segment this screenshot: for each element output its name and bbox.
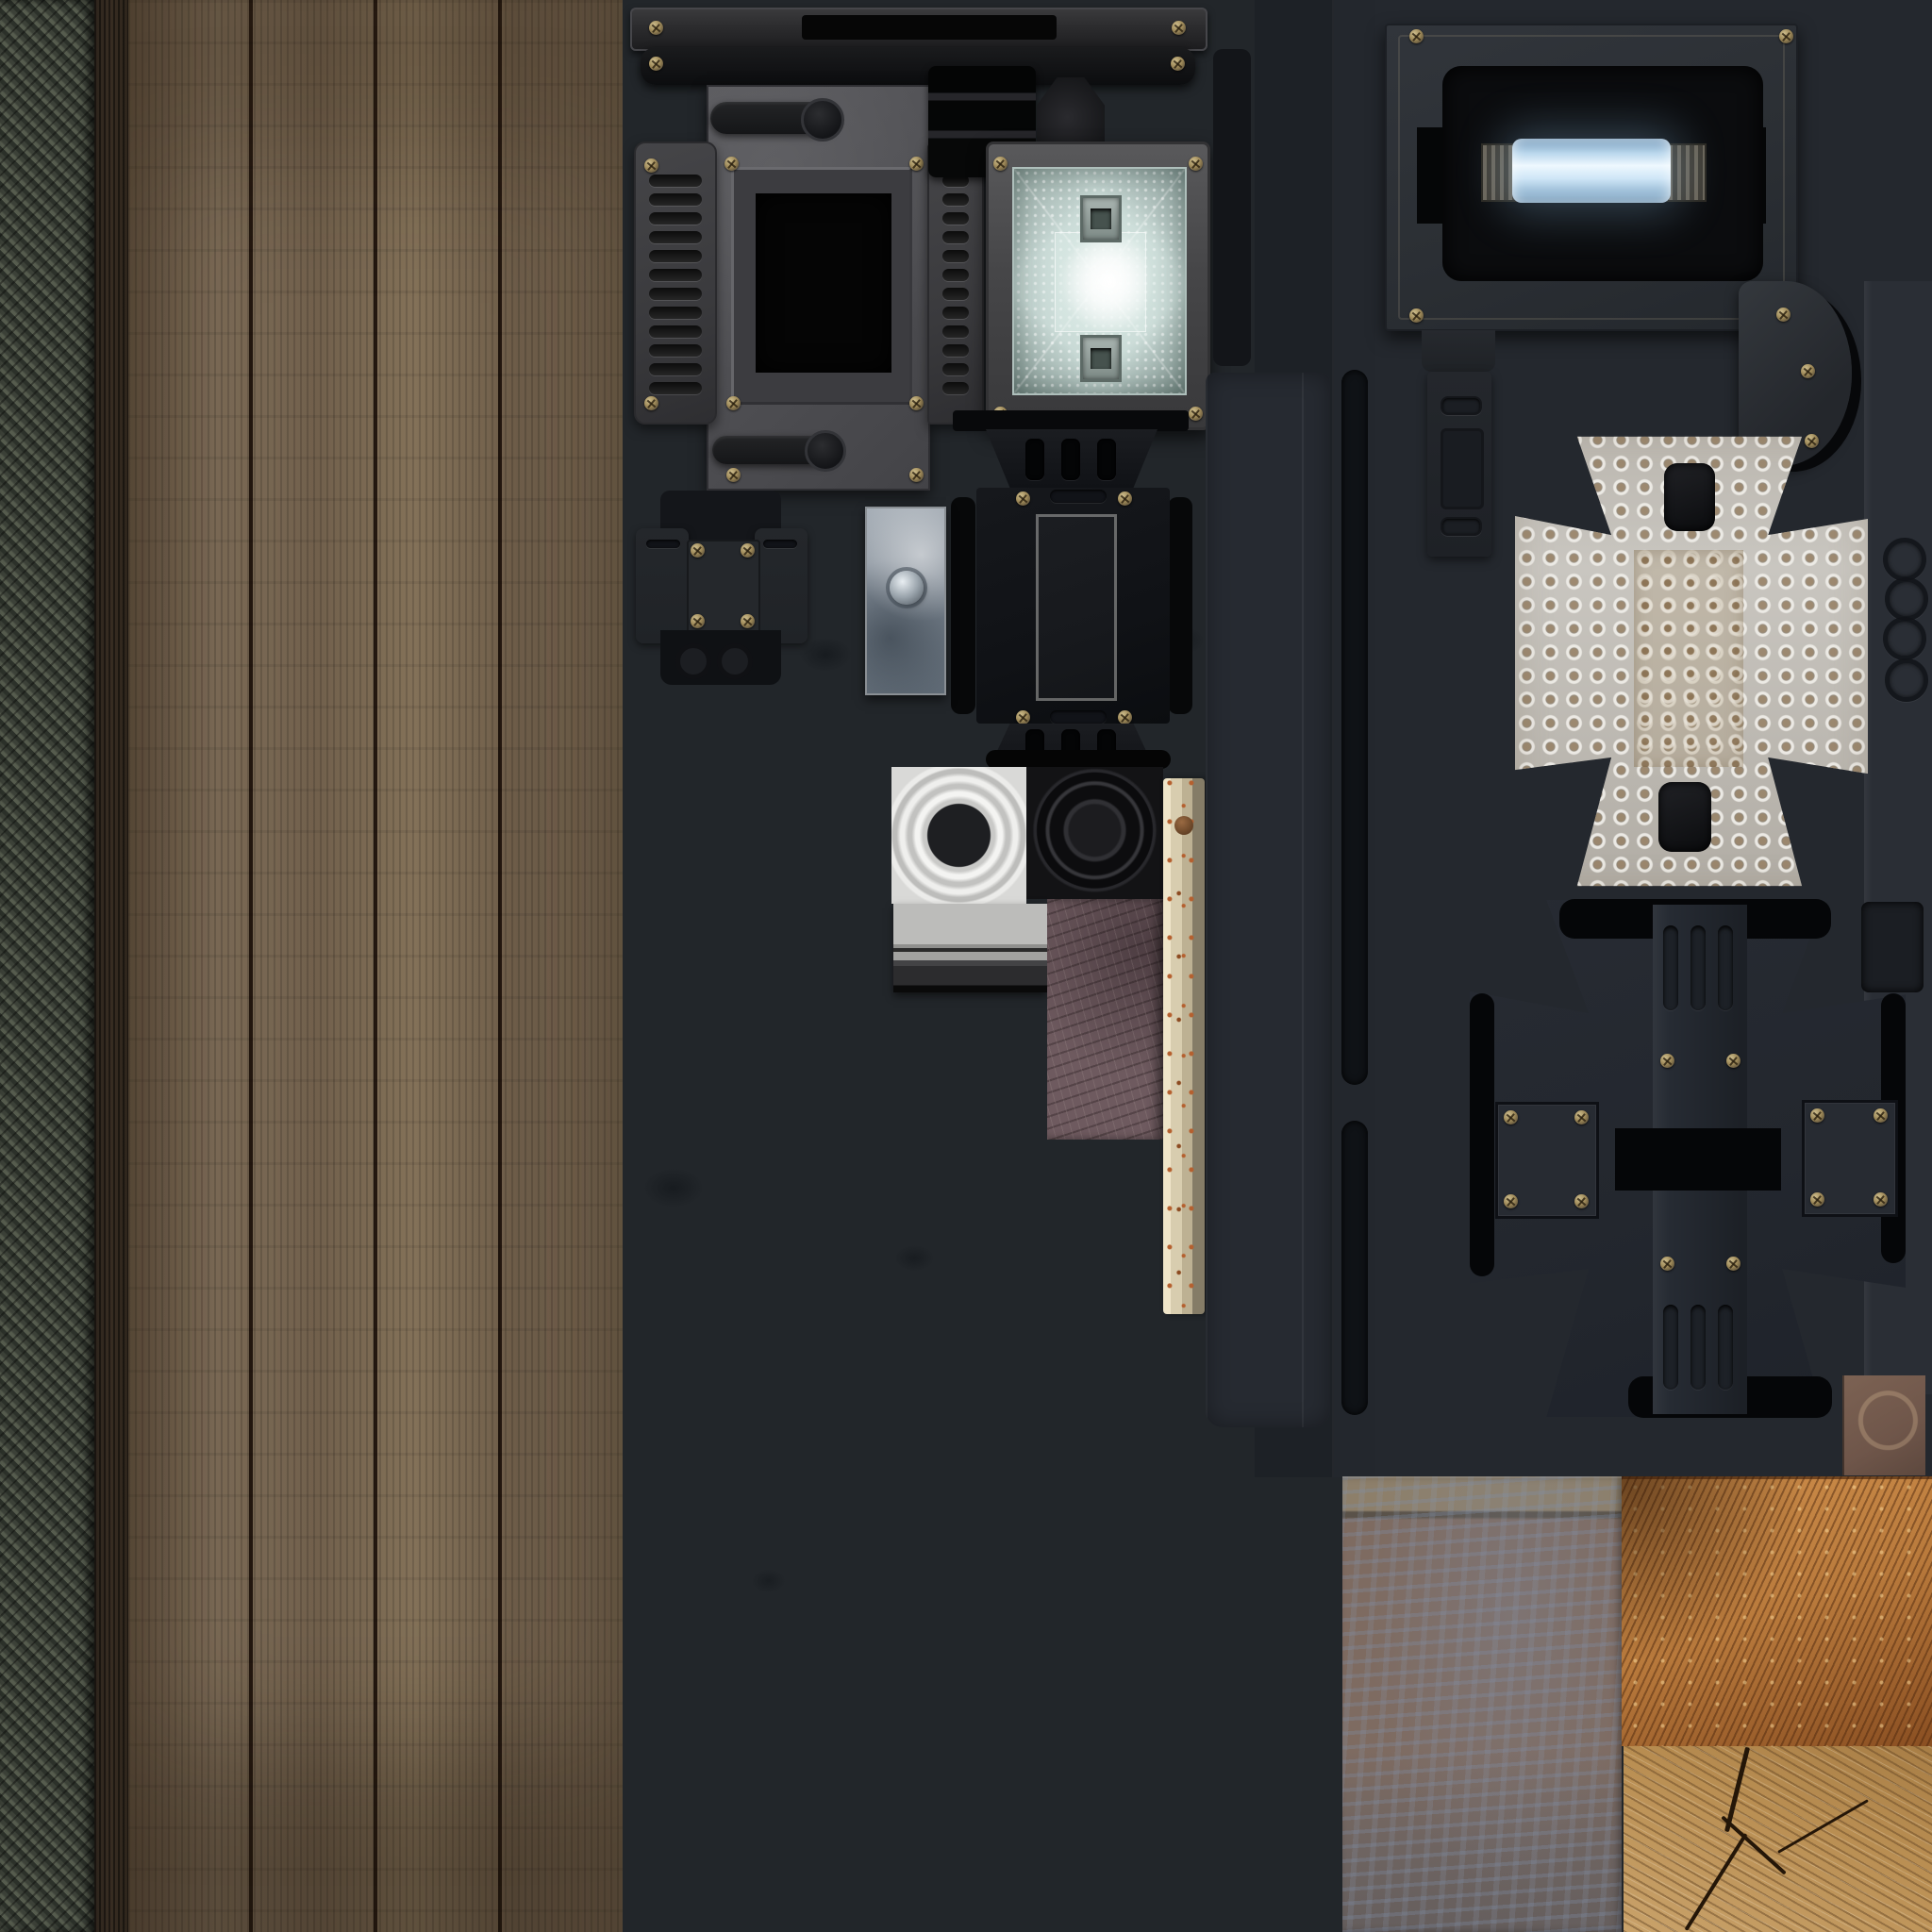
louver-slot bbox=[649, 288, 702, 300]
bracket-slot bbox=[763, 540, 797, 548]
bracket-slot bbox=[646, 540, 680, 548]
screw-icon bbox=[1660, 1257, 1674, 1271]
louver-slot bbox=[649, 382, 702, 394]
nut-ring-icon bbox=[1883, 538, 1926, 581]
screw-icon bbox=[741, 614, 755, 628]
white-speaker-tile bbox=[891, 767, 1026, 904]
louver-slot bbox=[942, 269, 969, 281]
louver-slot bbox=[649, 269, 702, 281]
box-pill-slot bbox=[1050, 490, 1107, 503]
box-pill-slot bbox=[1050, 710, 1107, 724]
marble-plate bbox=[865, 507, 946, 695]
bronze-square bbox=[1842, 1375, 1925, 1475]
cross-pad bbox=[1664, 463, 1715, 531]
louver-slot bbox=[649, 344, 702, 357]
bracket-center-plate bbox=[687, 540, 760, 634]
screw-icon bbox=[691, 543, 705, 558]
chassis-rib bbox=[1690, 925, 1706, 1010]
bracket-pill bbox=[1441, 396, 1482, 415]
screw-icon bbox=[1574, 1194, 1589, 1208]
flap-slot bbox=[1097, 439, 1116, 480]
blue-lamp-panel bbox=[1385, 24, 1798, 331]
box-body bbox=[976, 488, 1170, 724]
black-speaker-tile bbox=[1026, 767, 1163, 899]
screw-icon bbox=[644, 158, 658, 173]
screw-icon bbox=[1504, 1194, 1518, 1208]
screw-icon bbox=[1801, 364, 1815, 378]
louver-slot bbox=[942, 325, 969, 338]
corrugated-metal-strip bbox=[0, 0, 94, 1932]
crack-line bbox=[1777, 1799, 1869, 1854]
bar-slot bbox=[802, 15, 1057, 40]
wood-plank-boards bbox=[128, 0, 623, 1932]
wooden-slat bbox=[1163, 778, 1205, 1314]
nut-ring-icon bbox=[1883, 617, 1926, 660]
bracket-hole bbox=[675, 643, 711, 679]
tube-socket bbox=[1667, 143, 1707, 202]
louver-slot bbox=[649, 231, 702, 243]
handle-knob bbox=[801, 98, 844, 142]
nut-ring-icon bbox=[1885, 658, 1928, 702]
panel-side-tab bbox=[1417, 127, 1445, 224]
screw-icon bbox=[1409, 308, 1424, 323]
screw-icon bbox=[1874, 1192, 1888, 1207]
louver-slot bbox=[942, 382, 969, 394]
louver-slot bbox=[942, 344, 969, 357]
screw-icon bbox=[1726, 1054, 1740, 1068]
louver-slot bbox=[942, 193, 969, 206]
screw-icon bbox=[909, 468, 924, 482]
louver-slot bbox=[942, 307, 969, 319]
louver-slot bbox=[942, 250, 969, 262]
screw-icon bbox=[1016, 710, 1030, 724]
glow-tube bbox=[1512, 139, 1671, 203]
screw-icon bbox=[1016, 491, 1030, 506]
column-slot bbox=[1341, 1121, 1368, 1415]
reflector-backwall bbox=[1055, 232, 1145, 333]
louver-slot bbox=[942, 231, 969, 243]
bolt-icon bbox=[890, 571, 924, 605]
box-chalk-outline bbox=[1036, 514, 1117, 701]
bracket-window bbox=[1441, 428, 1484, 509]
bracket-bottom-flap bbox=[660, 630, 781, 685]
screw-icon bbox=[1776, 308, 1790, 322]
flap-box bbox=[951, 425, 1192, 775]
riveted-bar-upper bbox=[630, 8, 1207, 51]
chassis-center-black-rect bbox=[1615, 1128, 1781, 1191]
screw-icon bbox=[1660, 1054, 1674, 1068]
black-screen bbox=[756, 193, 891, 373]
louver-slot bbox=[649, 307, 702, 319]
screw-icon bbox=[1805, 434, 1819, 448]
screw-icon bbox=[1504, 1110, 1518, 1124]
nail-head-icon bbox=[1174, 816, 1193, 835]
cross-center-rect bbox=[1634, 550, 1743, 767]
chassis-rib bbox=[1718, 925, 1733, 1010]
screw-icon bbox=[1810, 1192, 1824, 1207]
texture-atlas bbox=[0, 0, 1932, 1932]
screw-icon bbox=[1726, 1257, 1740, 1271]
screw-icon bbox=[649, 21, 663, 35]
floodlight-reflector bbox=[1012, 167, 1187, 395]
nut-recess-rings bbox=[1881, 538, 1923, 698]
chassis-screw-plate bbox=[1495, 1102, 1599, 1219]
flap-slot bbox=[1061, 439, 1080, 480]
screw-icon bbox=[909, 396, 924, 410]
grey-molding-bar bbox=[893, 904, 1047, 992]
screw-icon bbox=[1409, 29, 1424, 43]
floodlight-housing bbox=[986, 142, 1210, 430]
louver-slot bbox=[649, 193, 702, 206]
box-side-flap bbox=[951, 497, 975, 714]
column-slot bbox=[1341, 370, 1368, 1085]
vent-grille-strip bbox=[927, 143, 984, 425]
handle-knob bbox=[805, 430, 846, 472]
dark-cross-chassis bbox=[1470, 891, 1906, 1425]
rail-panel bbox=[1206, 373, 1330, 1427]
box-top-flap bbox=[986, 429, 1158, 488]
screw-icon bbox=[1118, 491, 1132, 506]
chassis-rib bbox=[1663, 925, 1678, 1010]
lamp-element bbox=[1080, 335, 1122, 382]
black-top-bar bbox=[986, 750, 1171, 769]
chassis-screw-plate bbox=[1802, 1100, 1898, 1217]
louver-slot bbox=[942, 363, 969, 375]
bracket-small bbox=[635, 487, 808, 687]
nut-ring-icon bbox=[1885, 577, 1928, 621]
mounting-bar-lower bbox=[641, 47, 1195, 85]
bracket-hole bbox=[717, 643, 753, 679]
screw-icon bbox=[726, 396, 741, 410]
cracked-log-end bbox=[1624, 1746, 1932, 1932]
screw-icon bbox=[1172, 21, 1186, 35]
crack-line bbox=[1721, 1815, 1787, 1874]
vent-grille bbox=[634, 142, 717, 425]
louver-slot bbox=[942, 212, 969, 225]
slot-bracket bbox=[1427, 372, 1491, 557]
black-vertical-bar bbox=[1213, 49, 1251, 366]
screw-icon bbox=[1189, 157, 1203, 171]
screw-icon bbox=[726, 468, 741, 482]
louver-slot bbox=[649, 212, 702, 225]
screw-icon bbox=[993, 157, 1008, 171]
screw-icon bbox=[1574, 1110, 1589, 1124]
louver-slot bbox=[649, 363, 702, 375]
screw-icon bbox=[1189, 407, 1203, 421]
slot-column bbox=[1334, 0, 1375, 1477]
chassis-rib bbox=[1718, 1305, 1733, 1390]
leather-patch bbox=[1047, 899, 1164, 1140]
bracket-pill bbox=[1441, 517, 1482, 536]
control-panel bbox=[707, 85, 930, 491]
screw-icon bbox=[724, 157, 739, 171]
chassis-rib bbox=[1663, 1305, 1678, 1390]
screw-icon bbox=[909, 157, 924, 171]
screw-icon bbox=[1118, 710, 1132, 724]
screw-icon bbox=[1779, 29, 1793, 43]
louver-slot bbox=[649, 250, 702, 262]
screw-icon bbox=[691, 614, 705, 628]
louver-slot bbox=[649, 325, 702, 338]
screw-icon bbox=[1874, 1108, 1888, 1123]
lamp-element bbox=[1080, 195, 1122, 242]
louver-slot bbox=[649, 175, 702, 187]
screw-icon bbox=[1171, 57, 1185, 71]
screw-icon bbox=[1810, 1108, 1824, 1123]
connector-tab bbox=[1422, 330, 1495, 372]
louver-slot bbox=[942, 288, 969, 300]
chassis-black-bar bbox=[1470, 993, 1494, 1276]
screw-icon bbox=[649, 57, 663, 71]
box-side-flap bbox=[1168, 497, 1192, 714]
crack-line bbox=[1685, 1833, 1748, 1931]
flap-slot bbox=[1025, 439, 1044, 480]
screw-icon bbox=[741, 543, 755, 558]
chassis-rib bbox=[1690, 1305, 1706, 1390]
rusted-metal-panel bbox=[1342, 1476, 1622, 1932]
orange-timber bbox=[1622, 1476, 1932, 1746]
cross-pad bbox=[1658, 782, 1711, 852]
bark-edge-strip bbox=[94, 0, 128, 1932]
screw-icon bbox=[644, 396, 658, 410]
